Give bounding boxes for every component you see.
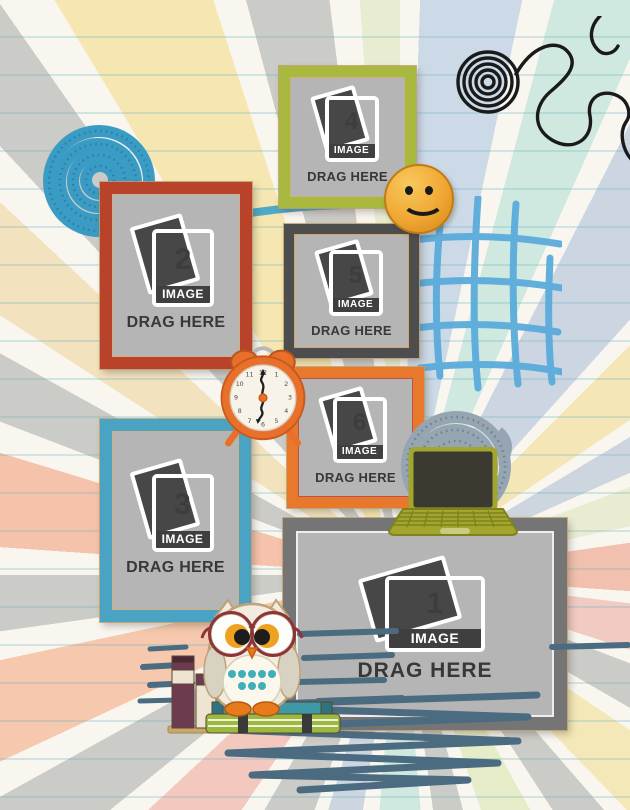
drag-here-label: DRAG HERE	[126, 559, 225, 577]
photo-drop-zone-2[interactable]: 2 IMAGE DRAG HERE	[112, 194, 240, 357]
smiley-face-sticker	[384, 164, 454, 234]
laptop-icon	[383, 447, 523, 539]
photo-front-icon: 4 IMAGE	[325, 96, 379, 162]
image-label: IMAGE	[329, 144, 375, 158]
photo-stack-icon: 3 IMAGE	[138, 464, 214, 552]
photo-stack-icon: 6 IMAGE	[325, 391, 387, 463]
svg-text:4: 4	[284, 408, 288, 415]
photo-stack-icon: 5 IMAGE	[321, 244, 383, 316]
svg-text:5: 5	[274, 418, 278, 425]
svg-text:9: 9	[234, 395, 238, 402]
photo-drop-zone-4[interactable]: 4 IMAGE DRAG HERE	[290, 77, 405, 197]
placeholder-number: 2	[156, 233, 210, 286]
alarm-clock-sticker: 12 1 2 3 4 5 6 7 8 9 10 11	[210, 336, 316, 450]
svg-text:10: 10	[236, 381, 244, 388]
photo-front-icon: 5 IMAGE	[329, 250, 383, 316]
photo-drop-zone-5[interactable]: 5 IMAGE DRAG HERE	[294, 234, 409, 348]
image-label: IMAGE	[333, 298, 379, 312]
placeholder-number: 5	[333, 254, 379, 298]
placeholder-number: 3	[156, 478, 210, 531]
drag-here-label: DRAG HERE	[127, 314, 226, 332]
photo-front-icon: 2 IMAGE	[152, 229, 214, 307]
svg-text:7: 7	[248, 418, 252, 425]
drag-here-label: DRAG HERE	[311, 323, 392, 338]
scrapbook-template-canvas: 4 IMAGE DRAG HERE 2 IMAGE DRAG HERE	[0, 0, 630, 810]
black-wire-doodle-icon	[436, 16, 630, 206]
photo-front-icon: 3 IMAGE	[152, 474, 214, 552]
placeholder-number: 4	[329, 100, 375, 144]
image-label: IMAGE	[156, 286, 210, 303]
svg-text:3: 3	[288, 395, 292, 402]
photo-drop-zone-3[interactable]: 3 IMAGE DRAG HERE	[112, 431, 239, 610]
image-label: IMAGE	[337, 445, 383, 459]
drag-here-label: DRAG HERE	[307, 169, 388, 184]
svg-text:6: 6	[261, 422, 265, 429]
smiley-mouth-icon	[401, 184, 445, 216]
svg-text:2: 2	[284, 381, 288, 388]
svg-text:1: 1	[274, 371, 278, 378]
image-label: IMAGE	[156, 531, 210, 548]
placeholder-number: 6	[337, 401, 383, 445]
owl-sticker	[196, 598, 308, 720]
svg-text:8: 8	[238, 408, 242, 415]
photo-front-icon: 6 IMAGE	[333, 397, 387, 463]
photo-stack-icon: 2 IMAGE	[138, 219, 214, 307]
photo-stack-icon: 4 IMAGE	[317, 90, 379, 162]
svg-text:11: 11	[246, 371, 254, 378]
